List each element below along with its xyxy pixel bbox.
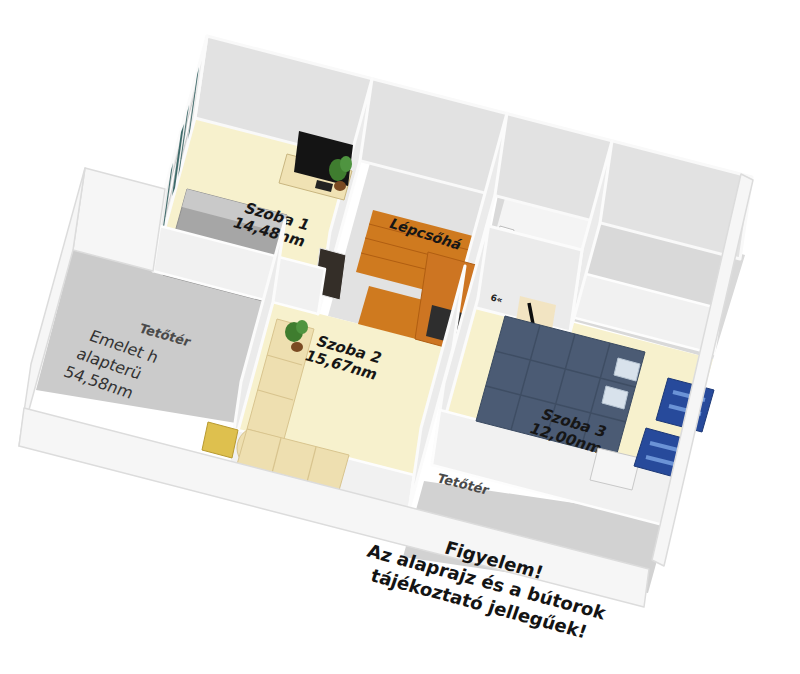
plant-leaves [340, 156, 352, 172]
plant-leaves [296, 320, 308, 334]
floorplan-render: Lépcsőhá 6« Szoba 1 14,48nm [0, 0, 800, 674]
floorplan-scene: Lépcsőhá 6« Szoba 1 14,48nm [0, 0, 800, 674]
side-table [202, 422, 238, 458]
plant-pot [291, 342, 303, 352]
plant-pot [334, 181, 346, 191]
